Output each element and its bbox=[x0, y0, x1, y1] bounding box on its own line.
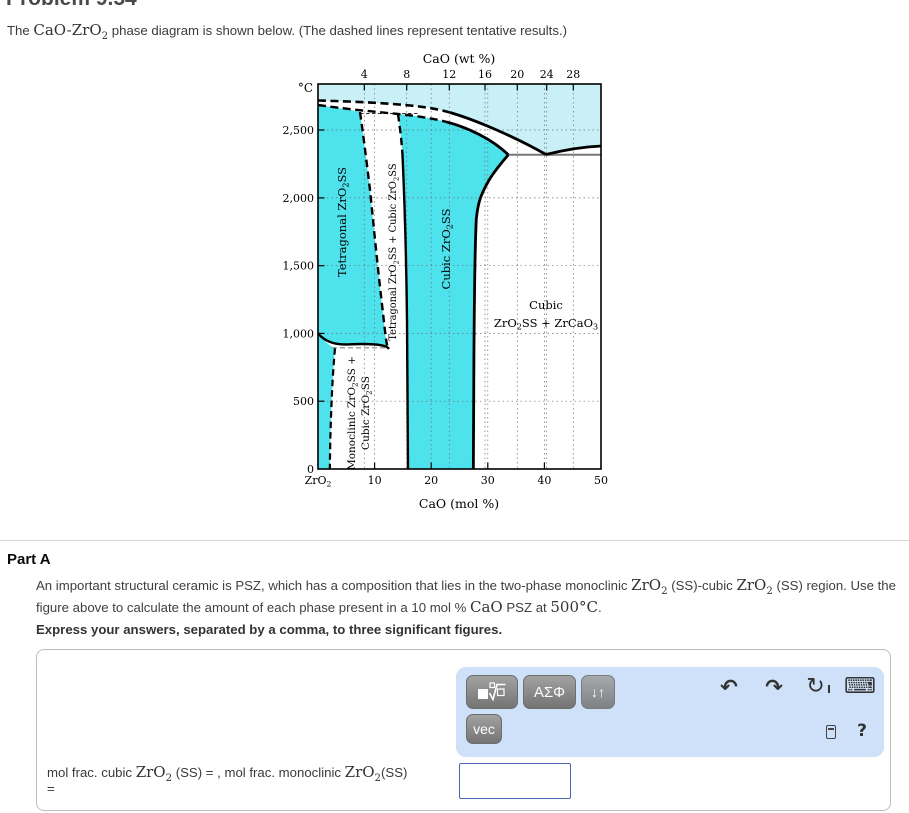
top-tick-labels: 48 1216 2024 28 bbox=[361, 68, 581, 81]
label-tetra-cubic: Tetragonal ZrO2SS + Cubic ZrO2SS bbox=[388, 163, 401, 340]
label-monoclinic-2: Cubic ZrO2SS bbox=[360, 376, 374, 450]
svg-text:20: 20 bbox=[424, 474, 438, 487]
svg-text:2,000: 2,000 bbox=[283, 192, 315, 205]
vec-button[interactable]: vec bbox=[466, 714, 502, 744]
svg-text:2,500: 2,500 bbox=[283, 124, 315, 137]
svg-text:1,500: 1,500 bbox=[283, 260, 315, 273]
page-title-clipped: Problem 9.54 bbox=[6, 0, 306, 9]
feedback-icon[interactable] bbox=[826, 725, 836, 739]
svg-text:4: 4 bbox=[361, 68, 368, 81]
greek-symbols-button[interactable]: ΑΣΦ bbox=[523, 675, 576, 709]
express-instruction: Express your answers, separated by a com… bbox=[36, 622, 502, 637]
svg-text:1,000: 1,000 bbox=[283, 327, 315, 340]
phase-diagram-figure: CaO (wt %) °C 48 1216 2024 28 0500 1,000… bbox=[280, 50, 620, 520]
svg-text:40: 40 bbox=[537, 474, 551, 487]
undo-icon[interactable]: ↶ bbox=[714, 675, 744, 699]
section-divider bbox=[0, 540, 909, 541]
bottom-tick-labels: ZrO210 2030 4050 bbox=[305, 474, 608, 489]
svg-text:10: 10 bbox=[368, 474, 382, 487]
y-axis-unit: °C bbox=[298, 81, 313, 95]
svg-text:28: 28 bbox=[566, 68, 580, 81]
answer-input[interactable] bbox=[459, 763, 571, 799]
question-text: An important structural ceramic is PSZ, … bbox=[36, 575, 896, 618]
svg-text:50: 50 bbox=[594, 474, 608, 487]
help-icon[interactable]: ? bbox=[850, 721, 874, 741]
answer-label: mol frac. cubic ZrO2 (SS) = , mol frac. … bbox=[47, 763, 447, 796]
label-tetragonal: Tetragonal ZrO2SS bbox=[335, 167, 351, 277]
updown-arrows-button[interactable]: ↓↑ bbox=[581, 675, 615, 709]
keyboard-icon[interactable]: ⌨ bbox=[844, 674, 874, 699]
svg-text:ZrO2: ZrO2 bbox=[305, 474, 332, 489]
svg-text:20: 20 bbox=[510, 68, 524, 81]
top-axis-title: CaO (wt %) bbox=[423, 51, 496, 66]
label-cubic-zrcao3-2: ZrO2SS + ZrCaO3 bbox=[494, 316, 598, 332]
intro-text: The CaO-ZrO2 phase diagram is shown belo… bbox=[7, 21, 887, 39]
answer-panel: ΑΣΦ ↓↑ vec ↶ ↷ ↻ ⌨ ? mol frac. cubic ZrO… bbox=[36, 649, 891, 811]
svg-text:8: 8 bbox=[403, 68, 410, 81]
label-cubic: Cubic ZrO2SS bbox=[439, 208, 455, 289]
part-a-heading: Part A bbox=[7, 551, 51, 568]
left-tick-labels: 0500 1,0001,500 2,0002,500 bbox=[283, 124, 315, 476]
svg-text:12: 12 bbox=[442, 68, 456, 81]
svg-text:24: 24 bbox=[540, 68, 554, 81]
svg-text:16: 16 bbox=[478, 68, 492, 81]
label-cubic-zrcao3-1: Cubic bbox=[529, 298, 563, 312]
problem-page: Problem 9.54 The CaO-ZrO2 phase diagram … bbox=[0, 0, 909, 813]
math-input-toolbar: ΑΣΦ ↓↑ vec ↶ ↷ ↻ ⌨ ? bbox=[456, 667, 884, 757]
redo-icon[interactable]: ↷ bbox=[759, 675, 789, 699]
root-template-button[interactable] bbox=[466, 675, 518, 709]
reset-icon[interactable]: ↻ bbox=[801, 674, 835, 699]
bottom-axis-title: CaO (mol %) bbox=[419, 496, 499, 511]
label-monoclinic-1: Monoclinic ZrO2SS + bbox=[346, 356, 360, 470]
svg-text:500: 500 bbox=[293, 395, 314, 408]
svg-text:30: 30 bbox=[481, 474, 495, 487]
nth-root-template-icon bbox=[476, 681, 508, 701]
